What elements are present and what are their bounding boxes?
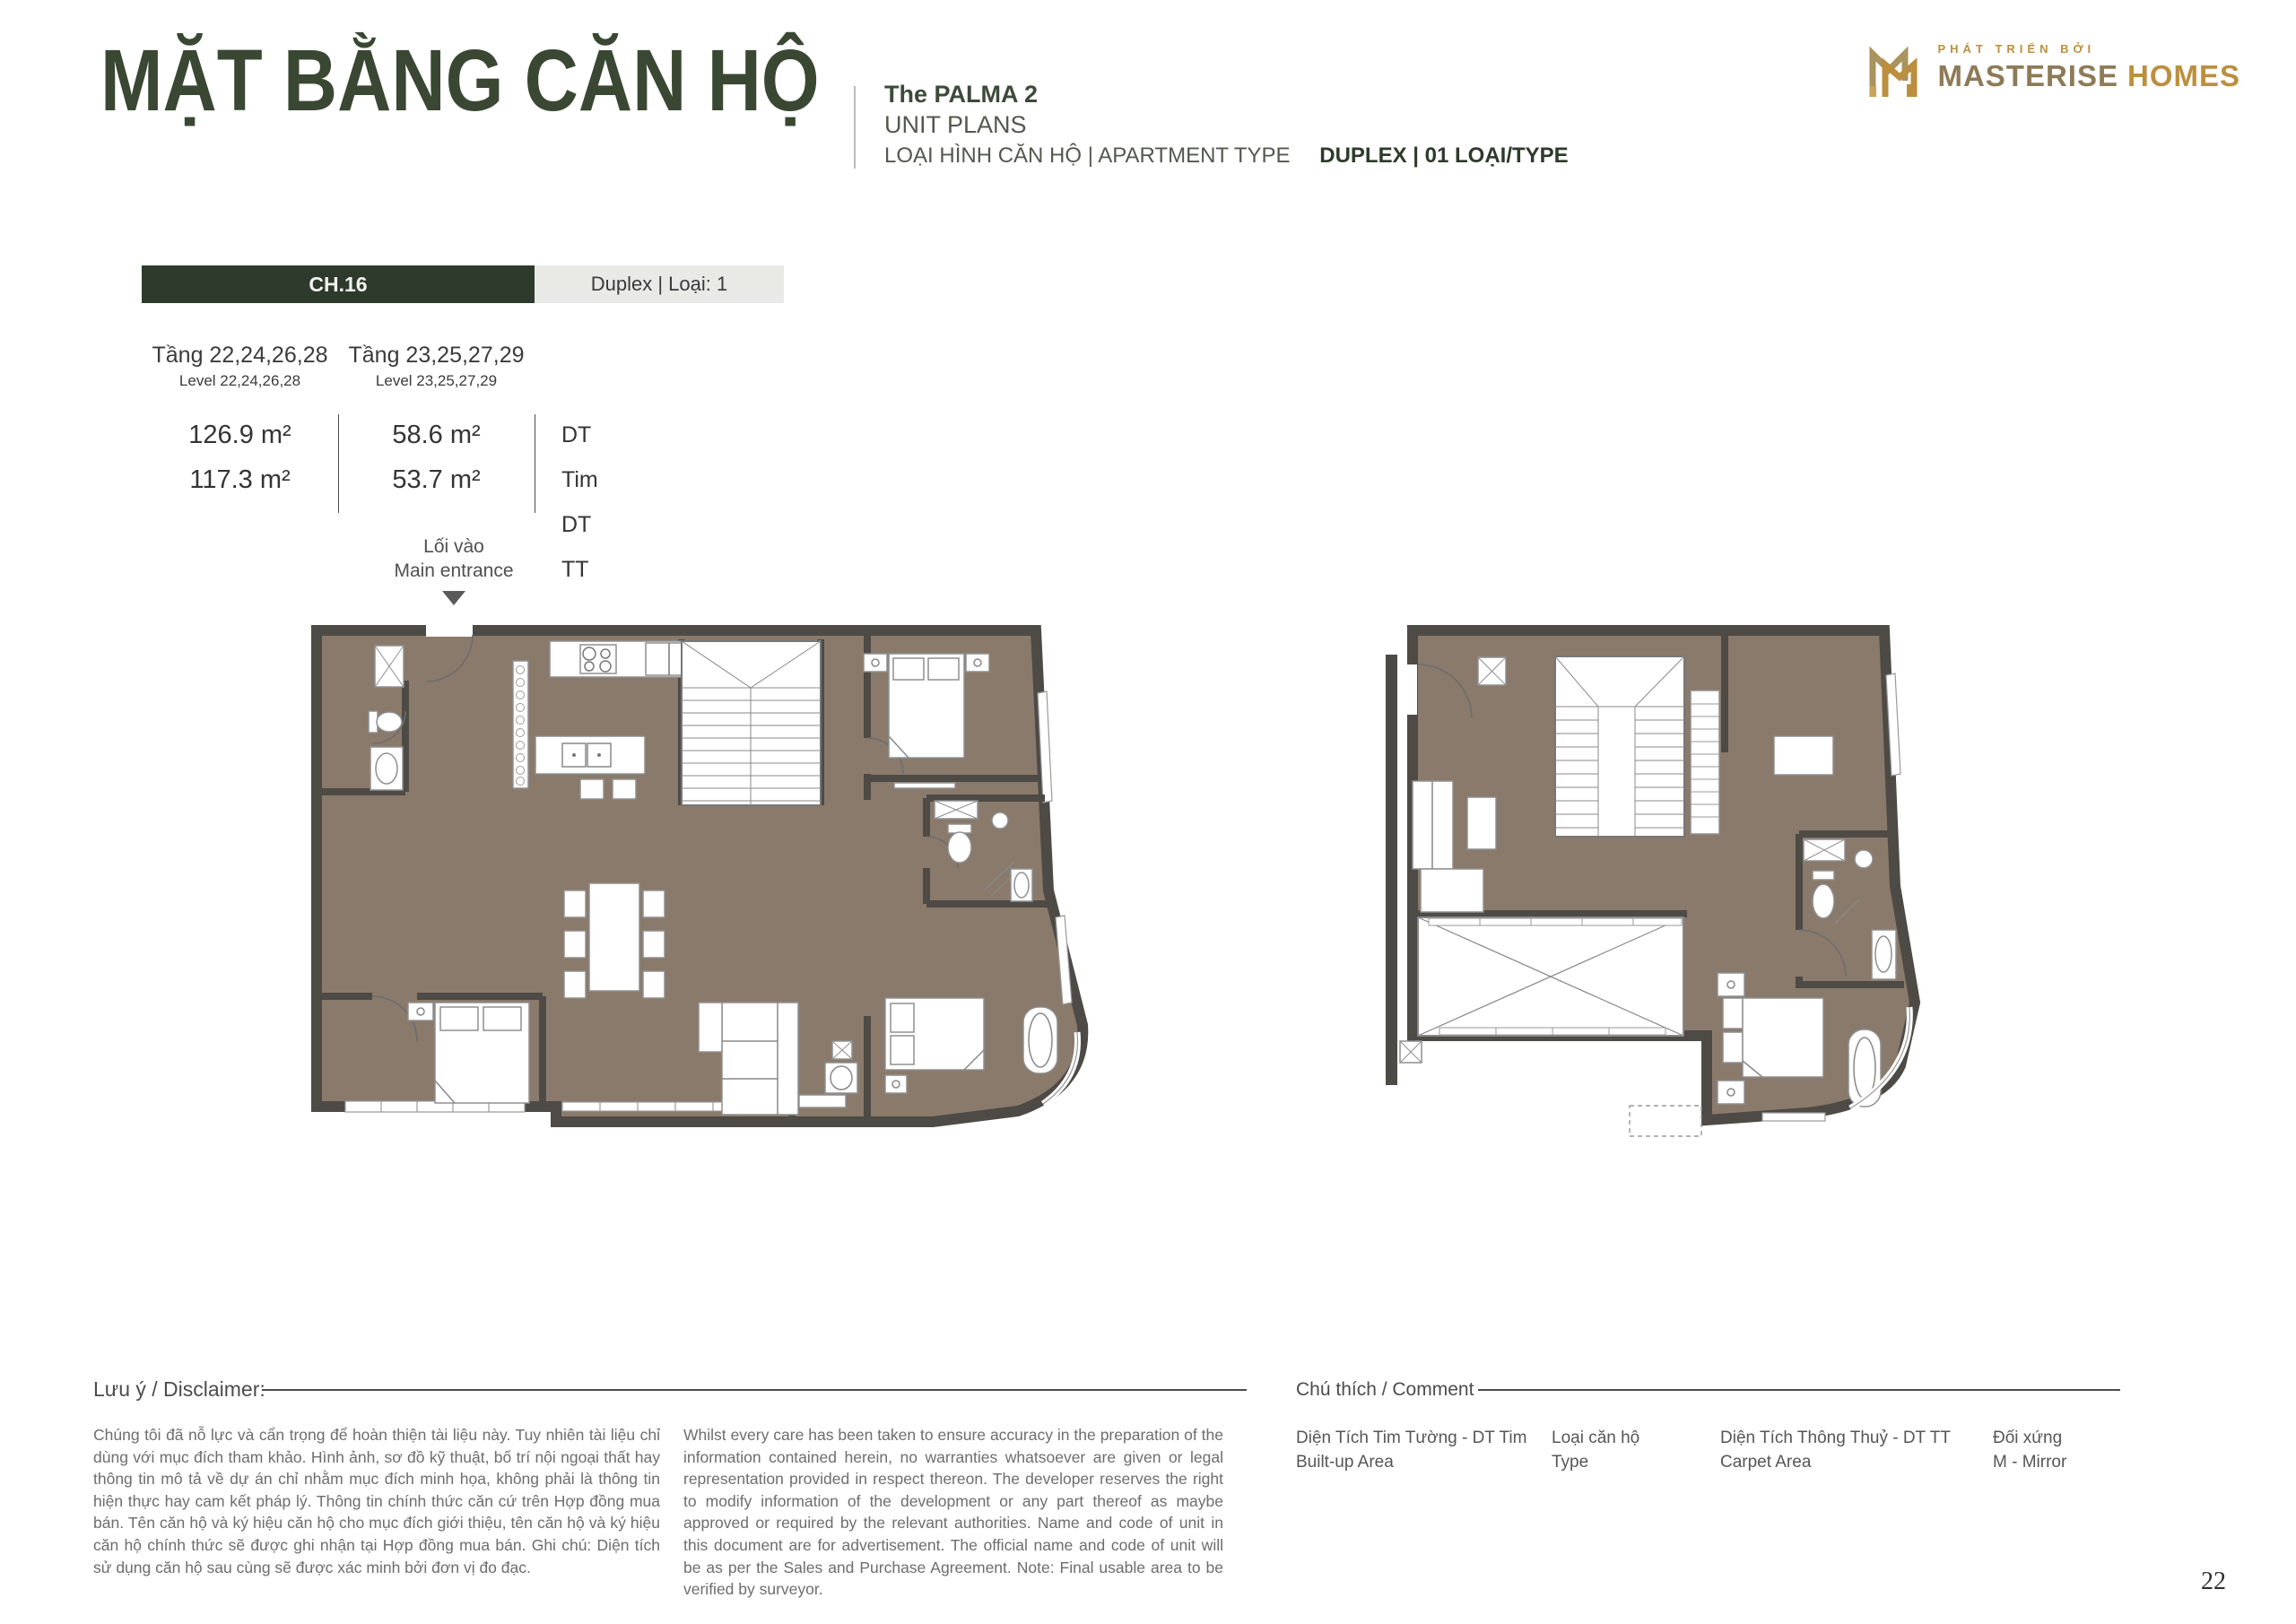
stairs <box>682 641 821 805</box>
level-row: Tầng 22,24,26,28 Level 22,24,26,28 Tầng … <box>142 343 535 390</box>
level-2-vi: Tầng 23,25,27,29 <box>338 343 535 369</box>
disclaimer-rule <box>262 1389 1247 1391</box>
area-label-tim: DT Tim <box>561 413 598 502</box>
legend-item-vi: Loại căn hộ <box>1552 1426 1639 1450</box>
legend-item-vi: Đối xứng <box>1993 1426 2066 1450</box>
logo-brand-primary: MASTERISE <box>1937 59 2118 92</box>
legend-item-built-up: Diện Tích Tim Tường - DT Tim Built-up Ar… <box>1296 1426 1526 1474</box>
entrance-label-vi: Lối vào <box>355 534 552 559</box>
entrance-label: Lối vào Main entrance <box>355 534 552 605</box>
area-column-1: 126.9 m² 117.3 m² <box>142 413 338 502</box>
level-1-en: Level 22,24,26,28 <box>142 372 338 390</box>
desk <box>1774 736 1833 775</box>
disclaimer-text-en: Whilst every care has been taken to ensu… <box>683 1424 1223 1601</box>
legend-item-en: Carpet Area <box>1720 1450 1951 1474</box>
level-2-en: Level 23,25,27,29 <box>338 372 535 390</box>
wardrobe <box>513 661 528 788</box>
project-info: The PALMA 2 UNIT PLANS LOẠI HÌNH CĂN HỘ … <box>884 83 1569 167</box>
legend-item-type: Loại căn hộ Type <box>1552 1426 1639 1474</box>
level-column-2: Tầng 23,25,27,29 Level 23,25,27,29 <box>338 343 535 390</box>
stairs <box>1555 656 1684 837</box>
area-divider-2 <box>535 414 535 513</box>
legend-label: Chú thích / Comment <box>1296 1379 1474 1401</box>
legend-item-en: M - Mirror <box>1993 1450 2066 1474</box>
legend-item-carpet: Diện Tích Thông Thuỷ - DT TT Carpet Area <box>1720 1426 1951 1474</box>
void-area <box>1418 917 1683 1036</box>
area-1-tt: 117.3 m² <box>142 457 338 502</box>
legend-rule <box>1478 1389 2120 1391</box>
logo-tagline: PHÁT TRIỂN BỞI <box>1937 42 2240 56</box>
developer-logo: PHÁT TRIỂN BỞI MASTERISEHOMES <box>1867 34 2240 100</box>
shaft <box>1478 657 1506 685</box>
area-2-tim: 58.6 m² <box>338 413 535 457</box>
shaft-2 <box>1400 1041 1422 1063</box>
page-number: 22 <box>2201 1568 2226 1596</box>
legend-item-en: Built-up Area <box>1296 1450 1526 1474</box>
logo-brand-secondary: HOMES <box>2127 59 2240 92</box>
area-column-2: 58.6 m² 53.7 m² <box>338 413 535 502</box>
area-2-tt: 53.7 m² <box>338 457 535 502</box>
apartment-type-line: LOẠI HÌNH CĂN HỘ | APARTMENT TYPE DUPLEX… <box>884 145 1569 167</box>
disclaimer-text-vi: Chúng tôi đã nỗ lực và cẩn trọng để hoàn… <box>93 1424 660 1578</box>
unit-info-table: CH.16 Duplex | Loại: 1 <box>142 265 784 303</box>
disclaimer-label: Lưu ý / Disclaimer: <box>93 1377 265 1402</box>
legend-item-vi: Diện Tích Thông Thuỷ - DT TT <box>1720 1426 1951 1450</box>
floor-plan-lower-level <box>300 621 1126 1139</box>
entrance-gap <box>426 623 473 637</box>
level-1-vi: Tầng 22,24,26,28 <box>142 343 338 369</box>
page-title: MẶT BẰNG CĂN HỘ <box>100 23 936 138</box>
area-1-tim: 126.9 m² <box>142 413 338 457</box>
shelf <box>1691 690 1719 834</box>
entrance-label-en: Main entrance <box>355 559 552 583</box>
page: { "page": { "number": "22" }, "header": … <box>0 0 2296 1624</box>
legend-item-mirror: Đối xứng M - Mirror <box>1993 1426 2066 1474</box>
unit-type-cell: Duplex | Loại: 1 <box>535 265 784 303</box>
floor-plan-upper-level <box>1386 621 1988 1139</box>
masterise-logo-mark-icon <box>1867 34 1925 100</box>
legend-item-en: Type <box>1552 1450 1639 1474</box>
area-labels: DT Tim DT TT <box>561 413 598 592</box>
apartment-type-label: LOẠI HÌNH CĂN HỘ | APARTMENT TYPE <box>884 143 1291 168</box>
level-column-1: Tầng 22,24,26,28 Level 22,24,26,28 <box>142 343 338 390</box>
legend-item-vi: Diện Tích Tim Tường - DT Tim <box>1296 1426 1526 1450</box>
logo-brand: MASTERISEHOMES <box>1937 59 2240 93</box>
kitchen <box>550 641 695 677</box>
apartment-type-value: DUPLEX | 01 LOẠI/TYPE <box>1319 143 1568 168</box>
core-wall <box>1386 655 1397 1085</box>
title-divider <box>854 86 856 169</box>
project-name: The PALMA 2 <box>884 83 1569 107</box>
ledge-dashed <box>1630 1106 1701 1136</box>
entrance-arrow-icon <box>442 591 465 605</box>
unit-code-cell: CH.16 <box>142 265 535 303</box>
unit-plans-label: UNIT PLANS <box>884 113 1569 137</box>
area-label-tt: DT TT <box>561 502 598 592</box>
entry-gap <box>1405 664 1417 715</box>
dining-table <box>564 883 665 998</box>
